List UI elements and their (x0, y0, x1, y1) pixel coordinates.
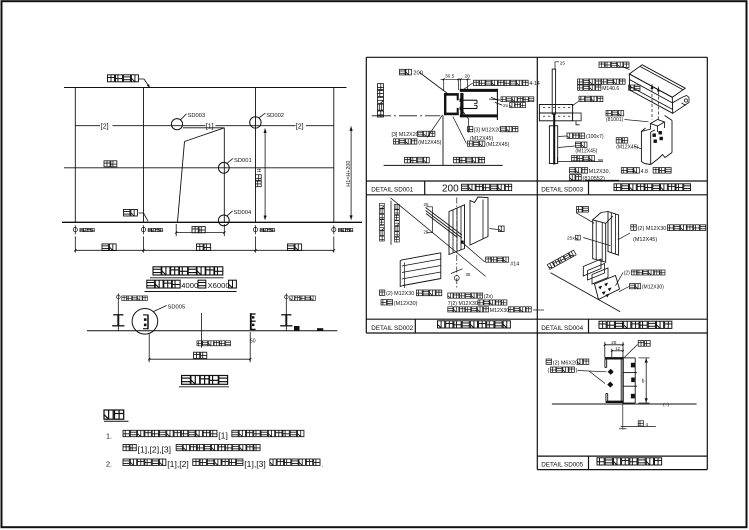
svg-text:DETAIL SD002: DETAIL SD002 (371, 325, 413, 332)
svg-text:H1=H+200: H1=H+200 (346, 161, 352, 187)
svg-text:): ) (576, 368, 578, 374)
svg-text:(81001): (81001) (606, 117, 624, 123)
svg-text:[3] M12X20: [3] M12X20 (392, 132, 419, 138)
svg-text:(M12X45): (M12X45) (633, 237, 657, 243)
svg-text:(M12X30): (M12X30) (642, 285, 664, 291)
svg-text:25: 25 (424, 230, 429, 235)
svg-text:(M12X45): (M12X45) (418, 140, 441, 146)
svg-text:(2) M6X20: (2) M6X20 (553, 360, 578, 366)
svg-text:200: 200 (442, 184, 459, 195)
svg-text:.: . (321, 462, 323, 469)
svg-text:SD005: SD005 (168, 305, 186, 311)
svg-text:7(2) M12X30: 7(2) M12X30 (448, 301, 478, 307)
svg-text:[2]: [2] (296, 123, 304, 130)
svg-text:SD001: SD001 (234, 158, 252, 164)
svg-text:(2) M12X30: (2) M12X30 (386, 291, 414, 297)
svg-text:[1],[2]: [1],[2] (167, 459, 189, 469)
svg-text:(2) M12X30: (2) M12X30 (638, 226, 667, 232)
svg-text:X6000: X6000 (208, 281, 230, 290)
svg-text:SD004: SD004 (234, 210, 253, 216)
svg-text:30.5: 30.5 (445, 74, 455, 80)
svg-text:H: H (257, 168, 263, 172)
svg-text:DETAIL SD005: DETAIL SD005 (541, 462, 583, 469)
svg-text:25: 25 (611, 340, 617, 345)
svg-text:25: 25 (424, 202, 429, 207)
svg-text:SD003: SD003 (188, 113, 206, 119)
svg-text:(M12X45): (M12X45) (616, 144, 638, 150)
svg-text:[1]: [1] (206, 123, 214, 130)
svg-text:25: 25 (560, 61, 566, 66)
svg-text:[1],[3]: [1],[3] (244, 459, 265, 469)
svg-text:M12X30: M12X30 (490, 308, 509, 314)
svg-text:(2x): (2x) (484, 294, 493, 300)
svg-text:12: 12 (615, 346, 620, 351)
svg-text:DETAIL SD004: DETAIL SD004 (541, 325, 583, 332)
svg-text:4-14: 4-14 (529, 81, 539, 87)
svg-text:DETAIL SD001: DETAIL SD001 (371, 187, 413, 194)
svg-text:(2): (2) (624, 271, 630, 277)
svg-text:4: 4 (646, 422, 649, 427)
svg-text:#14: #14 (510, 261, 519, 267)
svg-text:[1]: [1] (218, 430, 228, 440)
svg-text:M140.6: M140.6 (602, 86, 619, 92)
svg-text:M12X30,: M12X30, (589, 169, 610, 175)
svg-text:(M12X45): (M12X45) (486, 142, 509, 148)
svg-text:(810552): (810552) (583, 176, 606, 182)
svg-text:SD002: SD002 (266, 113, 284, 119)
svg-text:1.: 1. (106, 432, 112, 441)
svg-text:(100x7): (100x7) (586, 134, 604, 140)
svg-text:50: 50 (250, 339, 256, 345)
svg-text:(: ( (548, 368, 550, 374)
svg-text:[2]: [2] (101, 123, 109, 130)
svg-text:25x: 25x (567, 236, 575, 242)
svg-text:(M12X30): (M12X30) (394, 301, 418, 307)
svg-text:2x: 2x (503, 103, 509, 109)
svg-text:DETAIL SD003: DETAIL SD003 (541, 187, 583, 194)
svg-text:(+): (+) (663, 402, 669, 408)
svg-text:4.8: 4.8 (641, 169, 648, 175)
svg-text:35: 35 (466, 272, 471, 277)
svg-text:[3] M12X20: [3] M12X20 (474, 128, 501, 134)
svg-text:20: 20 (465, 74, 471, 80)
svg-text:(M12X45): (M12X45) (575, 149, 597, 155)
svg-text:b: b (642, 378, 645, 384)
svg-text:2.: 2. (106, 460, 112, 469)
svg-text:4000: 4000 (181, 281, 198, 290)
svg-text:[1],[2],[3]: [1],[2],[3] (138, 444, 171, 454)
